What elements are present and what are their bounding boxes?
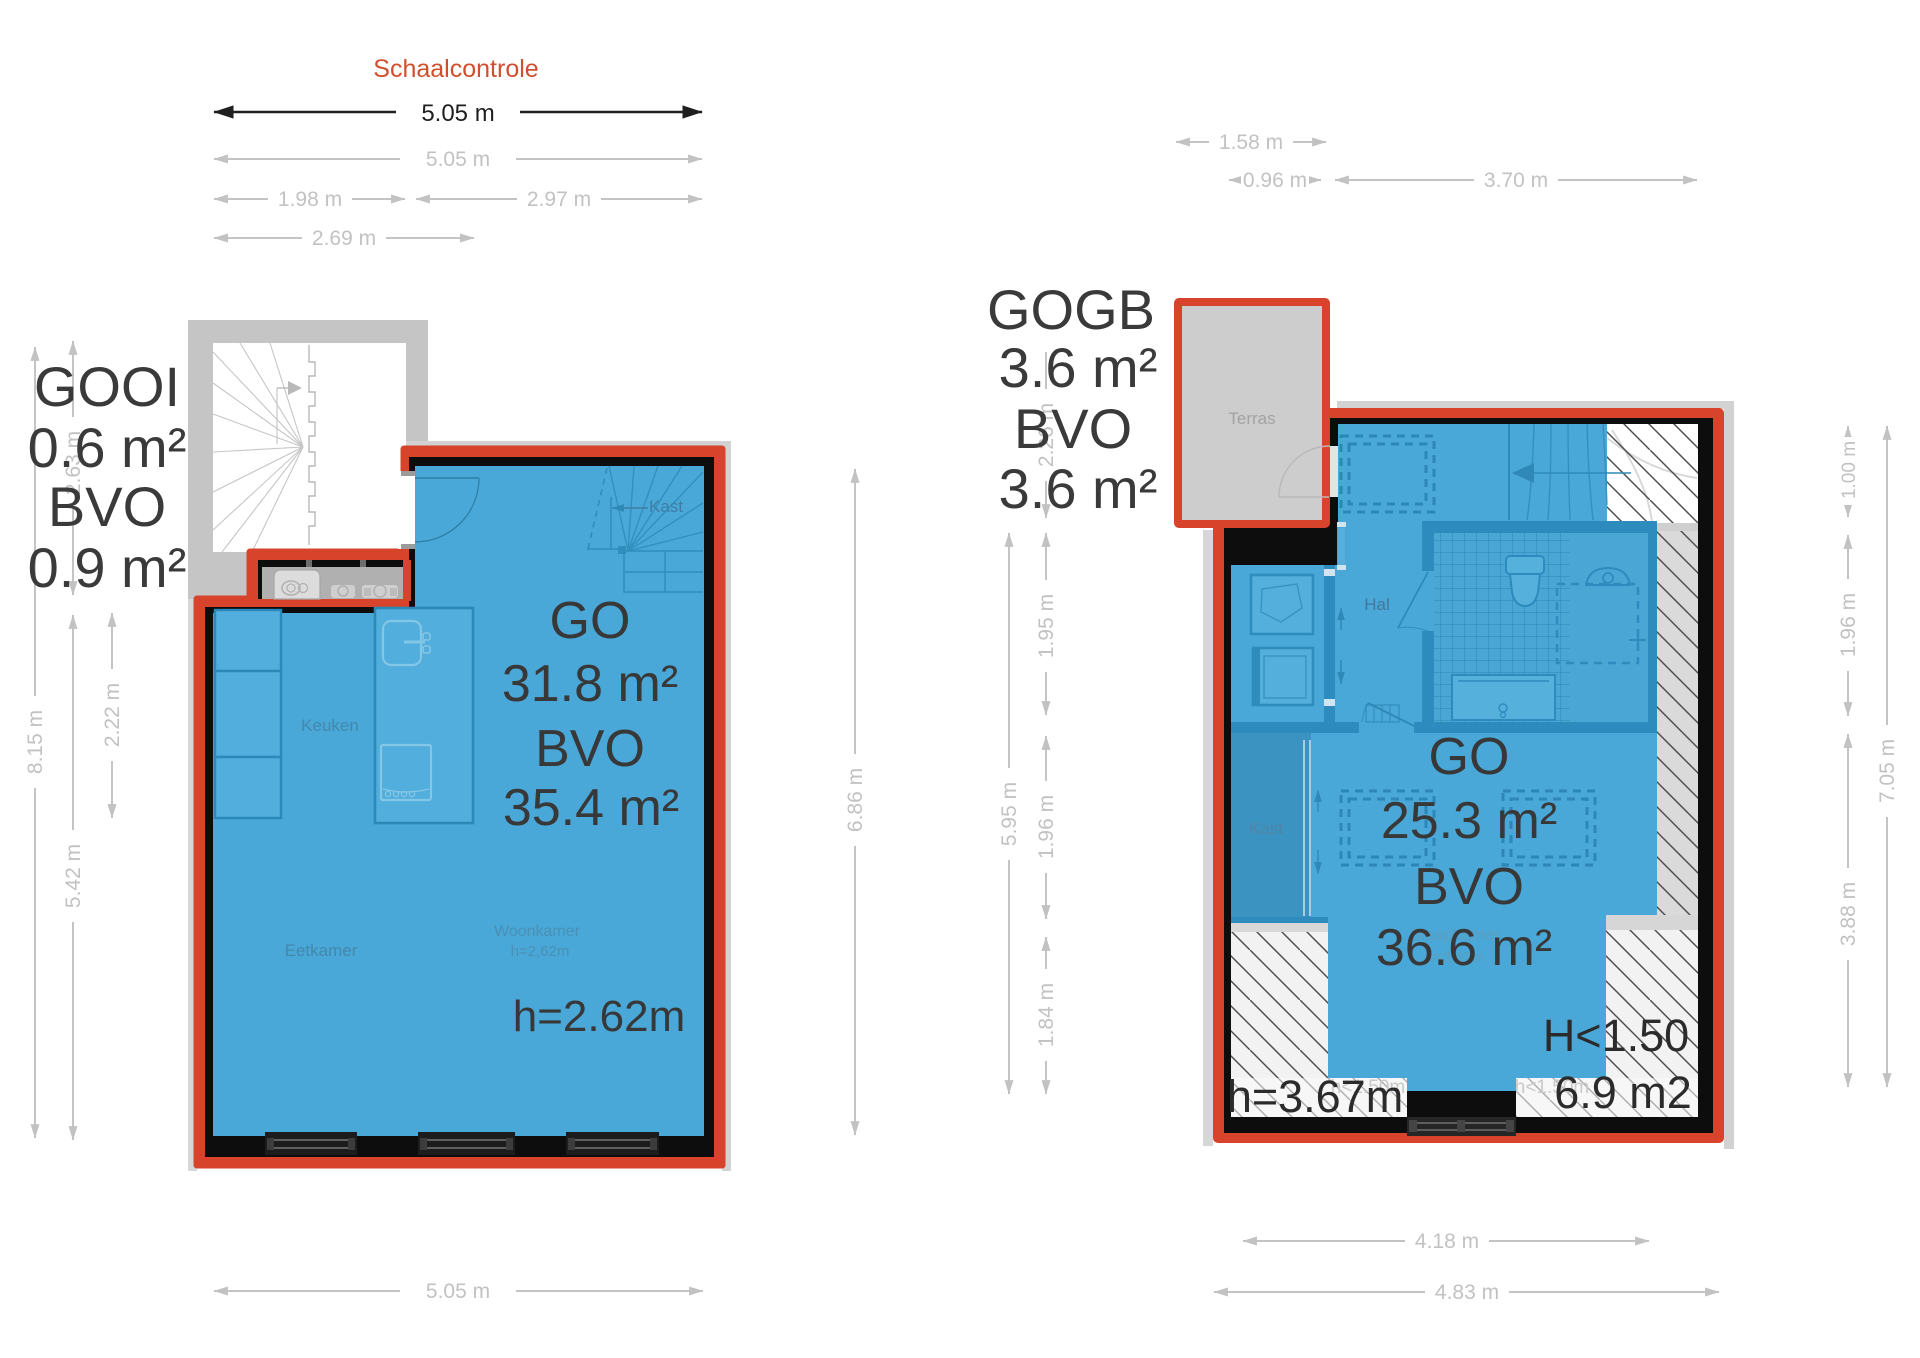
svg-text:h=3.67m: h=3.67m (1227, 1071, 1403, 1122)
svg-text:1.96 m: 1.96 m (1837, 593, 1860, 657)
svg-text:1.84 m: 1.84 m (1035, 983, 1058, 1047)
svg-text:GOOI: GOOI (34, 355, 180, 418)
svg-text:8.15 m: 8.15 m (24, 710, 47, 774)
svg-text:5.05 m: 5.05 m (421, 100, 494, 127)
svg-text:H<1.50: H<1.50 (1543, 1010, 1689, 1061)
svg-text:Keuken: Keuken (301, 716, 359, 735)
svg-text:4.18 m: 4.18 m (1415, 1230, 1479, 1253)
svg-text:3.70 m: 3.70 m (1484, 169, 1548, 192)
svg-text:35.4 m²: 35.4 m² (503, 779, 679, 837)
svg-text:h=2,62m: h=2,62m (511, 943, 570, 960)
svg-text:4.83 m: 4.83 m (1435, 1281, 1499, 1304)
svg-text:0.96 m: 0.96 m (1243, 169, 1307, 192)
svg-text:1.00 m: 1.00 m (1839, 441, 1860, 499)
svg-text:GO: GO (1429, 728, 1510, 786)
svg-text:BVO: BVO (48, 475, 166, 538)
svg-text:5.42 m: 5.42 m (62, 844, 85, 908)
svg-text:GOGB: GOGB (987, 278, 1155, 341)
svg-text:h=2.62m: h=2.62m (513, 992, 685, 1041)
svg-text:1.58 m: 1.58 m (1219, 131, 1283, 154)
svg-text:5.05 m: 5.05 m (426, 148, 490, 171)
svg-text:BVO: BVO (1414, 858, 1524, 916)
svg-text:2.69 m: 2.69 m (312, 227, 376, 250)
svg-text:Terras: Terras (1228, 409, 1275, 428)
svg-text:0.9 m²: 0.9 m² (28, 536, 187, 599)
svg-text:Kast: Kast (649, 497, 683, 516)
svg-text:BVO: BVO (535, 720, 645, 778)
svg-text:3.6 m²: 3.6 m² (999, 336, 1158, 399)
svg-text:Eetkamer: Eetkamer (285, 941, 358, 960)
svg-text:6.9 m2: 6.9 m2 (1554, 1067, 1692, 1118)
svg-text:6.86 m: 6.86 m (844, 768, 867, 832)
svg-text:1.98 m: 1.98 m (278, 188, 342, 211)
svg-text:BVO: BVO (1014, 397, 1132, 460)
svg-text:2.97 m: 2.97 m (527, 188, 591, 211)
svg-text:Kast: Kast (1249, 819, 1283, 838)
svg-text:1.96 m: 1.96 m (1035, 795, 1058, 859)
svg-text:31.8 m²: 31.8 m² (502, 655, 678, 713)
svg-text:3.88 m: 3.88 m (1837, 882, 1860, 946)
svg-text:36.6 m²: 36.6 m² (1376, 919, 1552, 977)
svg-text:5.05 m: 5.05 m (426, 1280, 490, 1303)
svg-text:7.05 m: 7.05 m (1876, 739, 1899, 803)
svg-text:25.3 m²: 25.3 m² (1381, 792, 1557, 850)
svg-text:1.95 m: 1.95 m (1035, 594, 1058, 658)
svg-text:3.6 m²: 3.6 m² (999, 457, 1158, 520)
svg-text:Hal: Hal (1364, 595, 1390, 614)
svg-text:2.22 m: 2.22 m (101, 683, 124, 747)
svg-text:Woonkamer: Woonkamer (494, 923, 581, 940)
svg-text:5.95 m: 5.95 m (998, 782, 1021, 846)
svg-text:0.6 m²: 0.6 m² (28, 416, 187, 479)
svg-text:Schaalcontrole: Schaalcontrole (373, 55, 538, 83)
svg-text:GO: GO (550, 592, 631, 650)
